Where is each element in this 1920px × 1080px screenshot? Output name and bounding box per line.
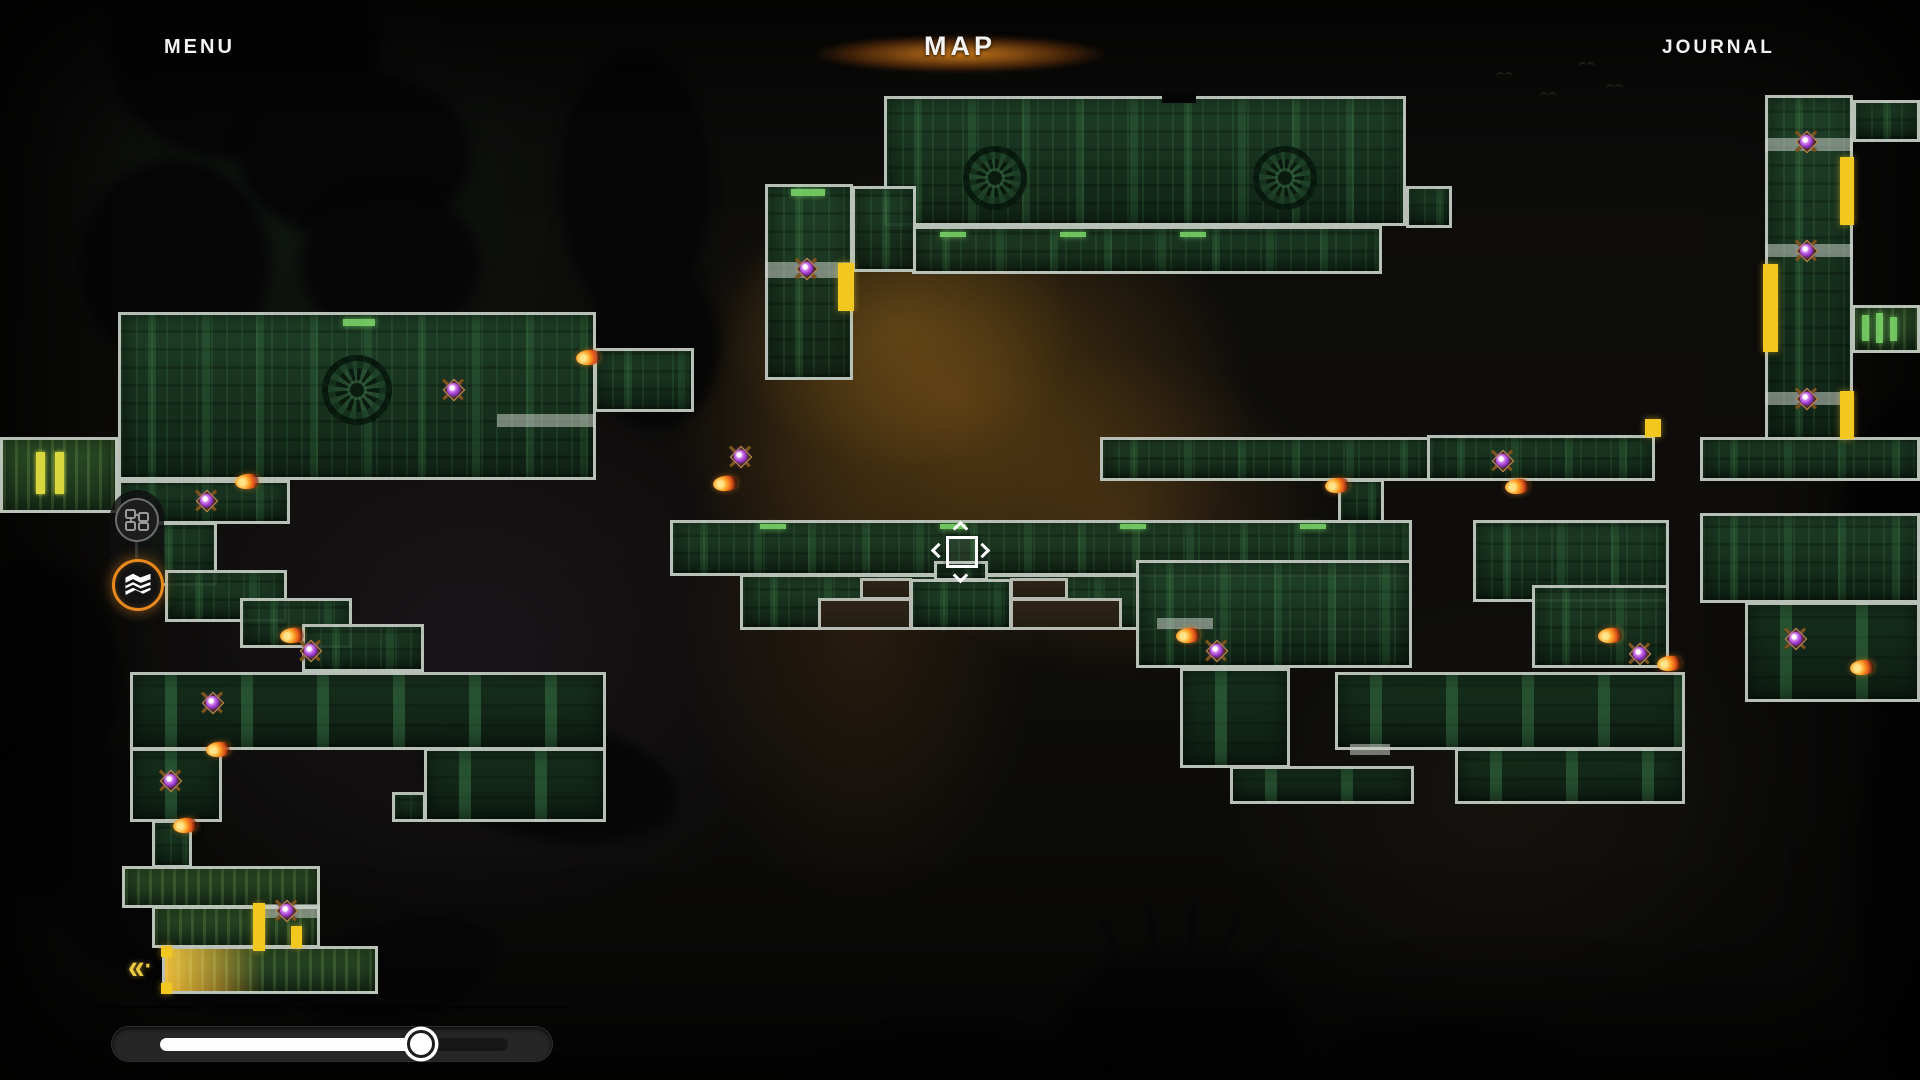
journal-button[interactable]: JOURNAL bbox=[1662, 37, 1775, 59]
door-marker bbox=[161, 946, 172, 957]
bird-silhouette bbox=[1540, 92, 1558, 101]
enemy-marker-icon bbox=[1489, 447, 1515, 473]
enemy-marker-icon bbox=[1626, 640, 1652, 666]
map-room bbox=[1136, 560, 1412, 668]
page-title: MAP bbox=[0, 31, 1920, 62]
map-icon bbox=[123, 571, 153, 599]
map-room bbox=[852, 186, 916, 272]
map-room bbox=[1700, 513, 1920, 603]
light-accent bbox=[1120, 524, 1146, 529]
light-accent bbox=[1876, 313, 1883, 343]
map-room bbox=[1455, 748, 1685, 804]
tab-map-view[interactable] bbox=[112, 559, 164, 611]
door-marker bbox=[1645, 419, 1661, 437]
enemy-marker-icon bbox=[193, 487, 219, 513]
map-room bbox=[392, 792, 426, 822]
passage-band bbox=[497, 414, 595, 427]
light-accent bbox=[1180, 232, 1206, 237]
door-marker bbox=[253, 903, 265, 951]
enemy-marker-icon bbox=[727, 443, 753, 469]
enemy-marker-icon bbox=[1793, 385, 1819, 411]
world-map: « bbox=[0, 0, 1920, 1080]
map-cutout bbox=[1010, 578, 1068, 600]
door-marker bbox=[291, 926, 302, 948]
map-room bbox=[1853, 100, 1920, 142]
map-room bbox=[424, 748, 606, 822]
door-marker bbox=[1840, 157, 1854, 225]
header-bar: MENU MAP JOURNAL bbox=[0, 0, 1920, 90]
tab-rooms-view[interactable] bbox=[115, 498, 159, 542]
map-room bbox=[910, 579, 1012, 630]
enemy-marker-icon bbox=[199, 689, 225, 715]
map-room bbox=[1745, 602, 1920, 702]
map-zoom-slider[interactable] bbox=[112, 1027, 552, 1061]
bottom-divider bbox=[88, 1006, 568, 1009]
enemy-marker-icon bbox=[1793, 128, 1819, 154]
light-accent bbox=[760, 524, 786, 529]
flame-marker-icon bbox=[1656, 655, 1681, 672]
light-accent bbox=[791, 189, 825, 196]
door-marker bbox=[1763, 264, 1778, 352]
flame-marker-icon bbox=[205, 741, 230, 758]
door-marker bbox=[161, 983, 172, 994]
light-accent bbox=[1300, 524, 1326, 529]
enemy-marker-icon bbox=[1782, 625, 1808, 651]
map-notch bbox=[1162, 92, 1196, 103]
enemy-marker-icon bbox=[1793, 237, 1819, 263]
map-room bbox=[1700, 437, 1920, 481]
map-room bbox=[1100, 437, 1434, 481]
gear-wheel-decoration bbox=[1253, 146, 1317, 210]
light-accent bbox=[343, 319, 375, 326]
passage-band bbox=[1350, 744, 1390, 755]
door-marker bbox=[838, 263, 854, 311]
highlighted-room-glow bbox=[165, 949, 265, 991]
enemy-marker-icon bbox=[273, 897, 299, 923]
map-room bbox=[884, 96, 1406, 226]
light-accent bbox=[940, 232, 966, 237]
flame-marker-icon bbox=[712, 475, 737, 492]
map-notch bbox=[392, 300, 424, 311]
door-marker bbox=[55, 452, 64, 494]
door-marker bbox=[36, 452, 45, 494]
zoom-slider-fill bbox=[160, 1038, 421, 1051]
map-room bbox=[1335, 672, 1685, 750]
map-room bbox=[912, 226, 1382, 274]
map-room bbox=[1406, 186, 1452, 228]
gear-wheel-decoration bbox=[963, 146, 1027, 210]
enemy-marker-icon bbox=[793, 255, 819, 281]
map-room bbox=[594, 348, 694, 412]
door-marker bbox=[1840, 391, 1854, 439]
enemy-marker-icon bbox=[157, 767, 183, 793]
enemy-marker-icon bbox=[440, 376, 466, 402]
zoom-slider-knob[interactable] bbox=[407, 1030, 435, 1058]
gear-wheel-decoration bbox=[322, 355, 392, 425]
map-room bbox=[1230, 766, 1414, 804]
enemy-marker-icon bbox=[1203, 637, 1229, 663]
flame-marker-icon bbox=[1504, 478, 1529, 495]
map-cutout bbox=[860, 578, 912, 600]
flame-marker-icon bbox=[172, 817, 197, 834]
map-room bbox=[1427, 435, 1655, 481]
map-cutout bbox=[1010, 598, 1122, 630]
light-accent bbox=[1862, 315, 1869, 341]
node-graph-icon bbox=[124, 508, 150, 532]
map-cutout bbox=[818, 598, 912, 630]
light-accent bbox=[1890, 317, 1897, 341]
map-room bbox=[1180, 668, 1290, 768]
fast-travel-marker[interactable]: « bbox=[128, 954, 152, 979]
map-screen: « MENU MAP JOURNAL bbox=[0, 0, 1920, 1080]
light-accent bbox=[1060, 232, 1086, 237]
player-location-marker bbox=[934, 520, 986, 580]
